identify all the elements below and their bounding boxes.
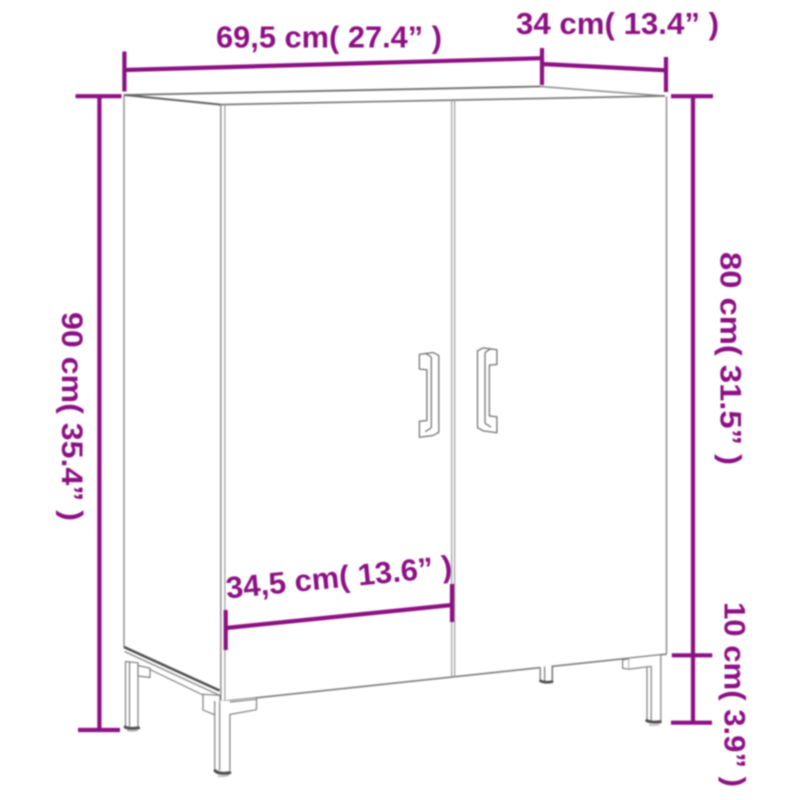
svg-text:69,5 cm( 27.4” ): 69,5 cm( 27.4” ) [216,21,442,55]
svg-text:10 cm( 3.9” ): 10 cm( 3.9” ) [718,602,751,787]
svg-text:80 cm( 31.5” ): 80 cm( 31.5” ) [714,252,747,465]
svg-text:34 cm( 13.4” ): 34 cm( 13.4” ) [516,7,719,41]
svg-text:90 cm( 35.4” ): 90 cm( 35.4” ) [55,312,88,521]
